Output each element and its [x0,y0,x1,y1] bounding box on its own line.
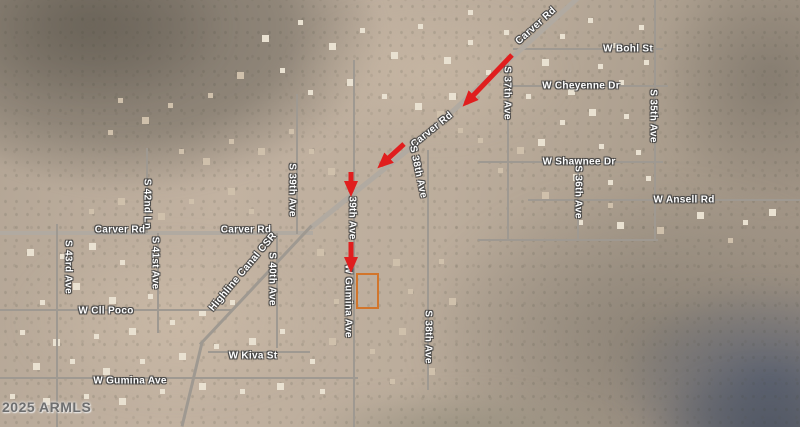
road-39th-ave-gumina [353,60,355,427]
road-w-cll-poco [0,309,232,311]
buildings-light-roofs [0,0,1,1]
terrain-desert-topright [655,0,800,210]
annotation-overlay [0,0,800,427]
road-w-bohl-st [513,48,663,50]
terrain-mountain-topleft [0,0,380,190]
road-w-ansell-rd [528,199,800,201]
road-highline-canal-south [181,342,204,426]
road-label-s-35th-ave: S 35th Ave [648,89,659,142]
terrain-residential-topcenter [295,5,565,140]
terrain-residential-left [20,235,330,405]
road-s-42nd-ln [146,148,148,233]
desert-texture [0,0,800,427]
road-w-shawnee-dr [478,161,663,163]
terrain-wash-bottomcenter [300,388,630,427]
parcel-highlight-rectangle [357,274,378,308]
road-s-35th-ave [654,0,656,241]
road-s-39th-ave [296,94,298,234]
road-label-w-gumina-ave-north: W Gumina Ave [343,264,354,337]
terrain-desert-right [420,180,800,427]
road-s-38th-ave [427,150,429,390]
terrain-brush-bottomright [600,270,800,427]
road-label-39th-ave: 39th Ave [347,196,358,239]
terrain-ridge-topleft [0,0,240,120]
road-s-36th-ave [577,161,579,241]
terrain-dark-bottomright [640,360,800,427]
road-carver-rd-diagonal-lower [308,138,422,231]
road-highline-canal [199,225,313,346]
satellite-map: Carver RdW Bohl StW Cheyenne DrS 37th Av… [0,0,800,427]
road-grid-south [478,239,658,241]
road-w-kiva-st [208,351,310,353]
road-label-w-cll-poco: W Cll Poco [78,306,133,317]
buildings-tan-roofs [0,0,1,1]
road-label-s-38th-ave-north: S 38th Ave [407,145,429,200]
road-label-s-43rd-ave: S 43rd Ave [63,240,74,294]
road-s-43rd-ave [56,224,58,427]
road-s-37th-ave [507,58,509,240]
street-labels-layer: Carver RdW Bohl StW Cheyenne DrS 37th Av… [0,0,800,427]
road-s-40th-ave [276,233,278,348]
road-label-carver-rd-top: Carver Rd [514,5,559,47]
armls-watermark: 2025 ARMLS [2,399,91,415]
road-w-gumina-ave [0,377,358,379]
road-w-cheyenne-dr [503,85,668,87]
road-s-41st-ave [157,233,159,333]
